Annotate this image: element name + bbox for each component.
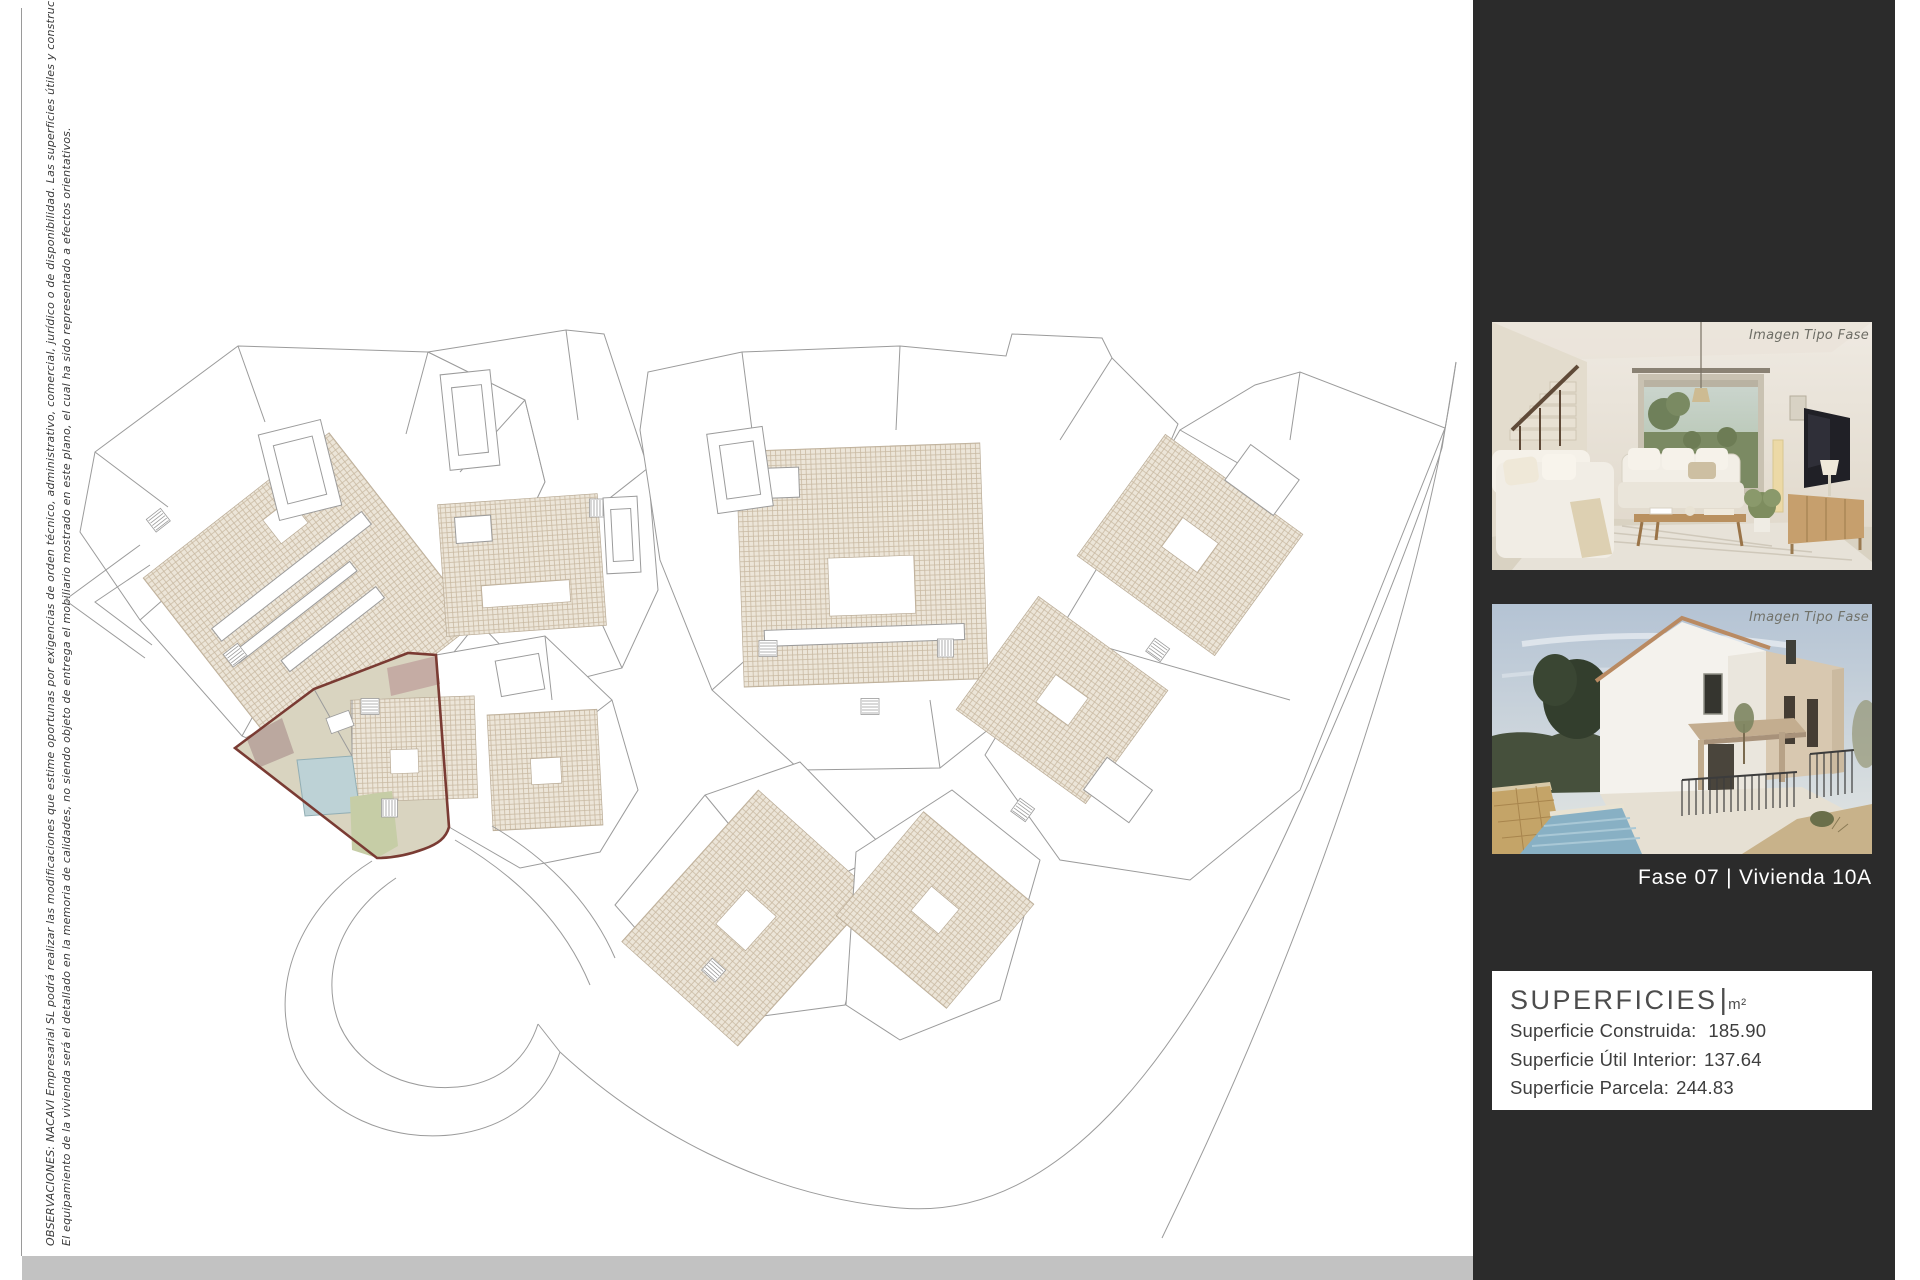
stairs-icon: [861, 699, 879, 715]
stairs-icon: [382, 799, 398, 817]
exterior-render: [1492, 604, 1872, 854]
superficies-label: Superficie Útil Interior:: [1510, 1049, 1697, 1070]
phase-label: Fase 07 | Vivienda 10A: [1492, 866, 1872, 890]
photo-caption: Imagen Tipo Fase: [1749, 328, 1869, 343]
superficies-label: Superficie Parcela:: [1510, 1077, 1669, 1098]
interior-render: [1492, 322, 1872, 570]
side-panel: Imagen Tipo Fase: [1473, 0, 1895, 1280]
plan-linework: [65, 330, 1456, 1238]
patio: [707, 426, 774, 513]
site-plan: [0, 0, 1473, 1280]
brochure-page: OBSERVACIONES: NACAVI Empresarial SL pod…: [0, 0, 1920, 1280]
superficies-separator: |: [1720, 984, 1728, 1017]
superficies-label: Superficie Construida:: [1510, 1020, 1696, 1041]
superficies-card: SUPERFICIES|m² Superficie Construida:185…: [1492, 971, 1872, 1110]
superficies-row-parcela: Superficie Parcela:244.83: [1510, 1074, 1854, 1103]
patio: [495, 653, 545, 696]
stairs-icon: [759, 641, 777, 657]
left-sofa: [1492, 450, 1614, 558]
roof-hatch: [487, 709, 603, 831]
access-road: [285, 826, 615, 1136]
stairs-icon: [361, 699, 379, 715]
superficies-row-construida: Superficie Construida:185.90: [1510, 1017, 1854, 1046]
footer-bar: [22, 1256, 1473, 1280]
patio: [440, 370, 500, 471]
exterior-photo: Imagen Tipo Fase: [1492, 604, 1872, 854]
patio: [603, 496, 641, 574]
superficies-title: SUPERFICIES|m²: [1510, 984, 1854, 1017]
superficies-title-text: SUPERFICIES: [1510, 985, 1718, 1016]
superficies-unit: m²: [1728, 996, 1747, 1013]
interior-photo: Imagen Tipo Fase: [1492, 322, 1872, 570]
center-sofa: [1618, 448, 1744, 508]
superficies-value: 185.90: [1708, 1020, 1766, 1041]
photo-caption: Imagen Tipo Fase: [1749, 610, 1869, 625]
roof-hatch: [438, 494, 607, 637]
stairs-icon: [938, 639, 954, 657]
superficies-row-util: Superficie Útil Interior:137.64: [1510, 1046, 1854, 1075]
superficies-value: 137.64: [1704, 1049, 1762, 1070]
superficies-value: 244.83: [1676, 1077, 1734, 1098]
